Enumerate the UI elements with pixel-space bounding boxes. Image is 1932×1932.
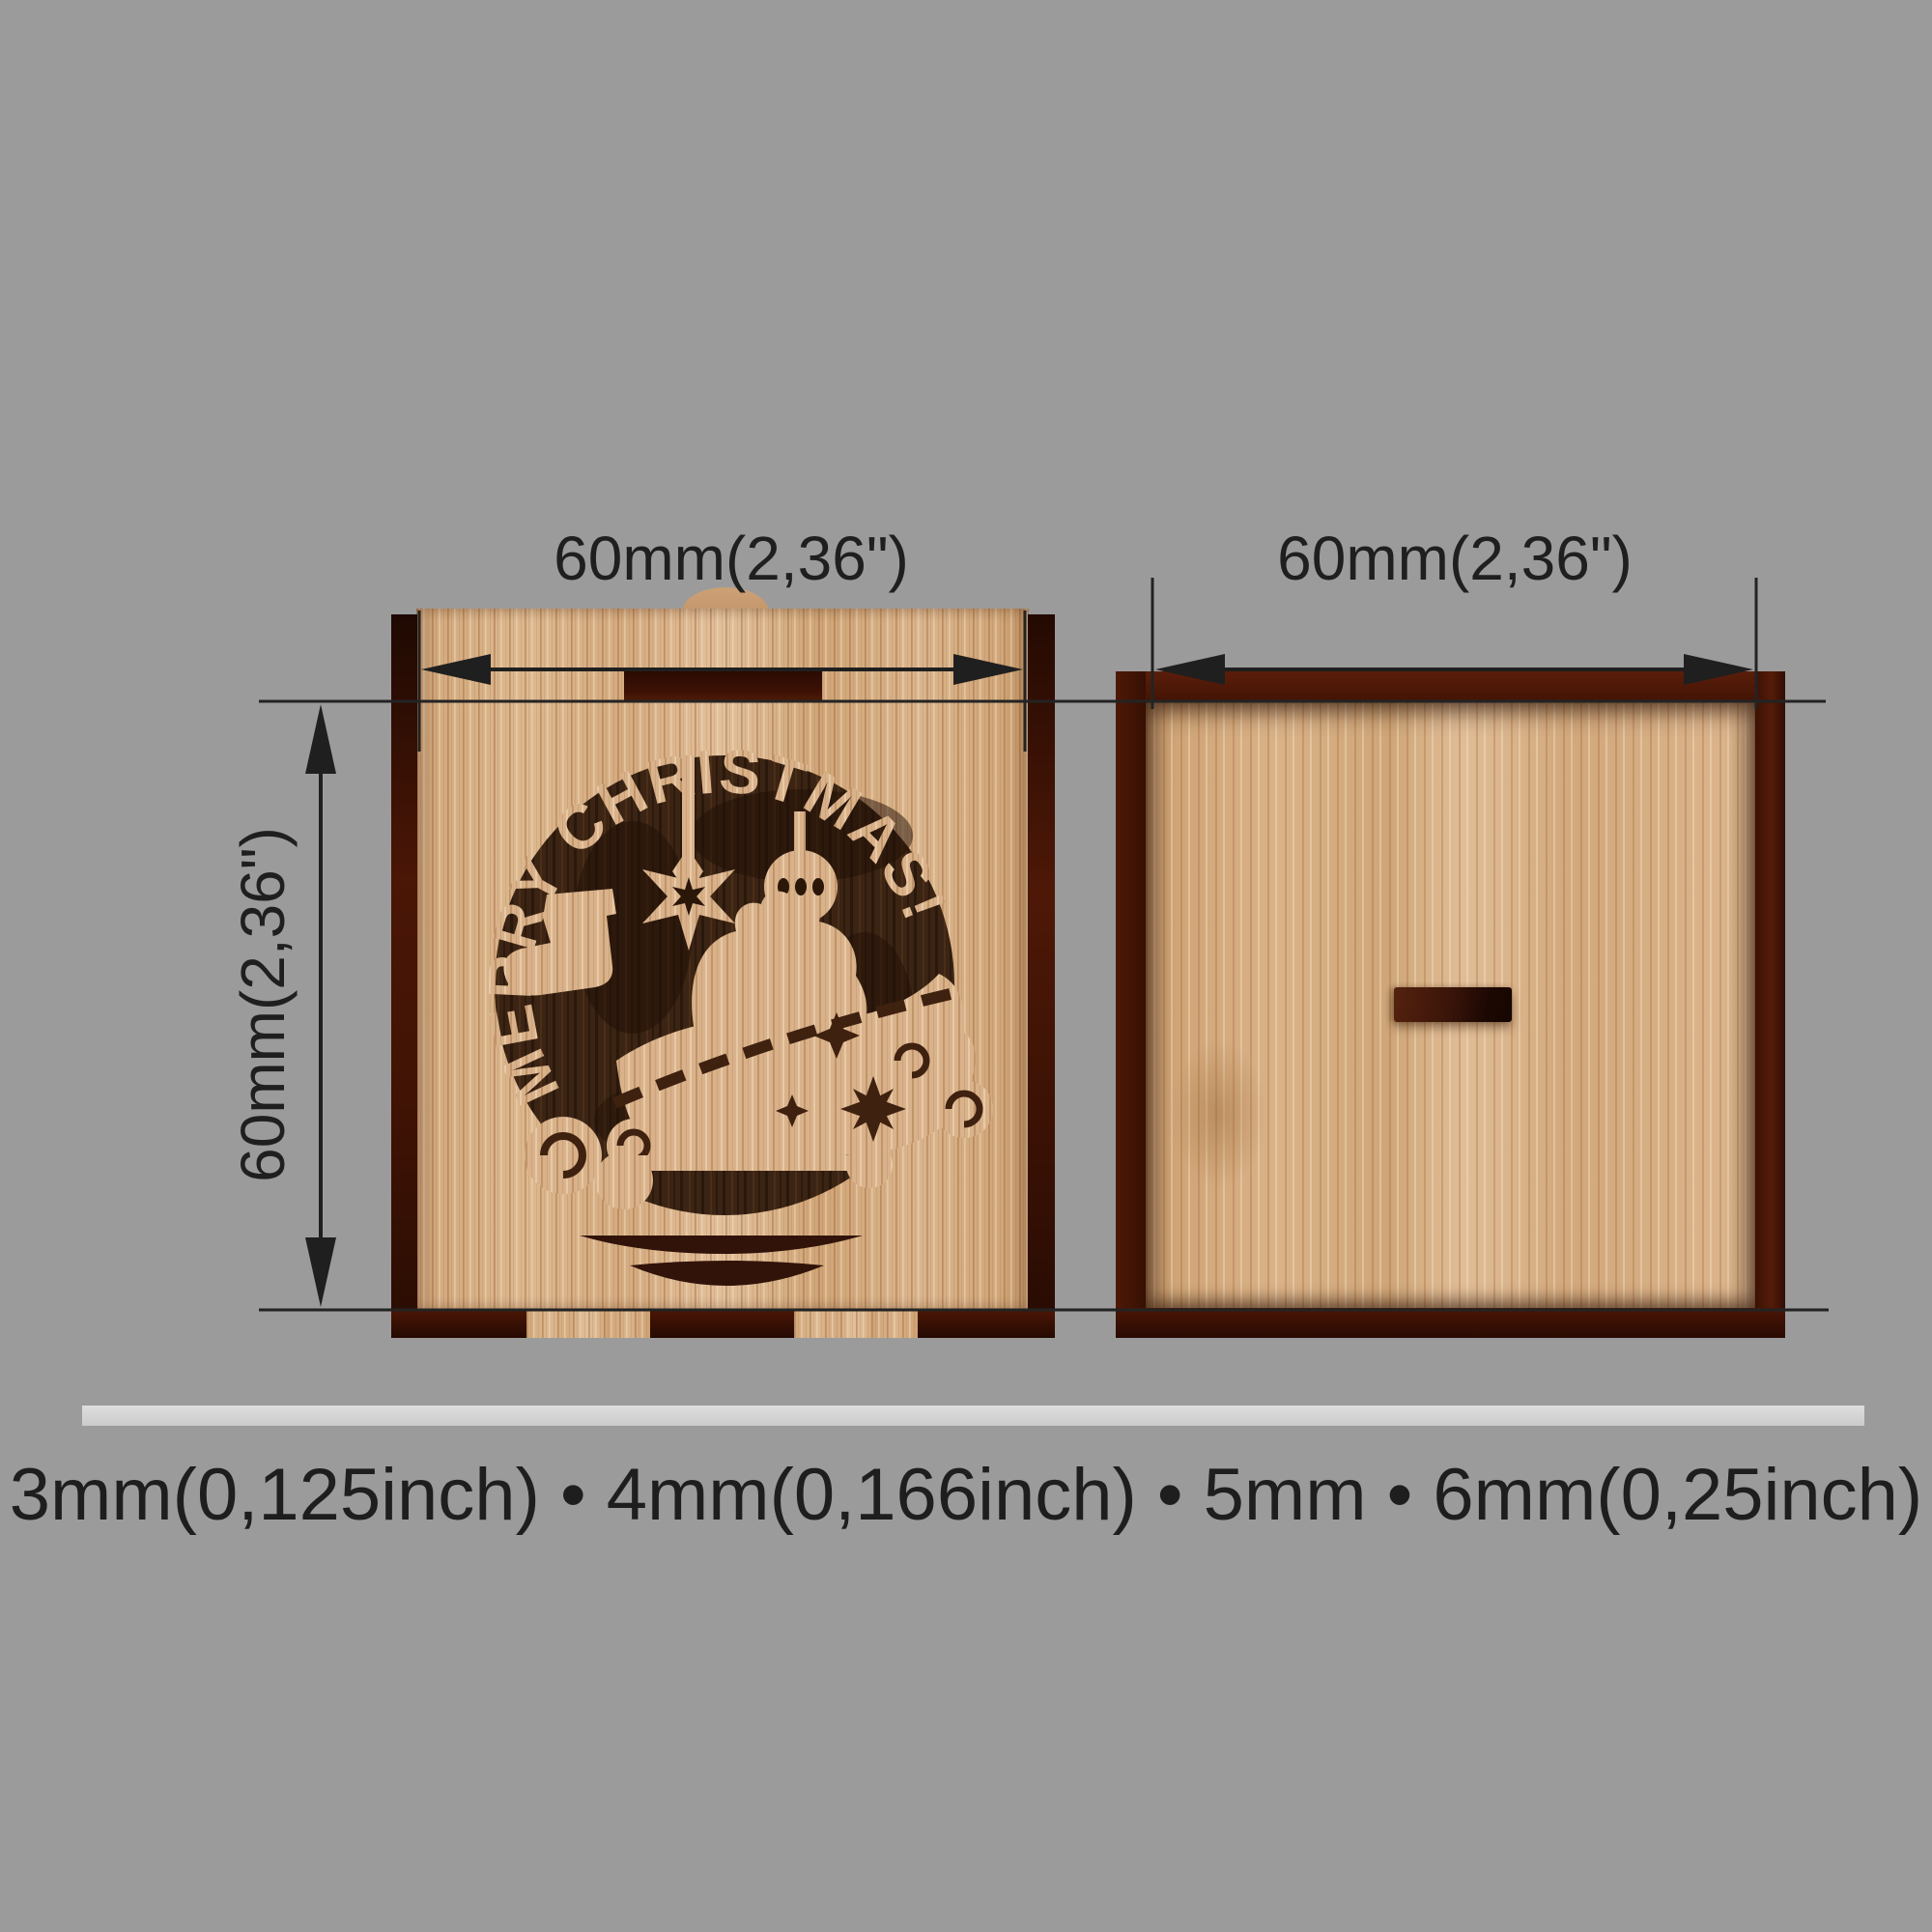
front-bottom-tab-dark bbox=[650, 1310, 794, 1338]
christmas-engraving-medallion: MERRY CHRISTMAS! bbox=[416, 609, 1029, 1310]
front-bottom-tab-dark bbox=[391, 1310, 526, 1338]
side-frame-top bbox=[1116, 671, 1785, 701]
side-handle-slot bbox=[1394, 987, 1512, 1022]
side-width-dimension-label: 60mm(2,36") bbox=[1068, 524, 1841, 593]
front-bottom-tab-dark bbox=[918, 1310, 1055, 1338]
front-left-edge-strip bbox=[391, 614, 417, 1310]
material-thickness-options: 3mm(0,125inch) • 4mm(0,166inch) • 5mm • … bbox=[0, 1449, 1932, 1542]
footer-divider-bar bbox=[82, 1406, 1864, 1426]
front-width-dimension-label: 60mm(2,36") bbox=[345, 524, 1118, 593]
front-height-dimension-label: 60mm(2,36") bbox=[214, 715, 311, 1294]
front-bottom-tab-wood bbox=[794, 1310, 918, 1338]
front-bottom-tab-wood bbox=[526, 1310, 650, 1338]
side-frame-left bbox=[1116, 671, 1146, 1338]
side-frame-bottom bbox=[1116, 1308, 1785, 1338]
bottom-slits bbox=[580, 1236, 863, 1286]
front-right-edge-strip bbox=[1028, 614, 1055, 1310]
side-frame-right bbox=[1755, 671, 1785, 1338]
product-dimension-diagram: MERRY CHRISTMAS! bbox=[0, 0, 1932, 1932]
